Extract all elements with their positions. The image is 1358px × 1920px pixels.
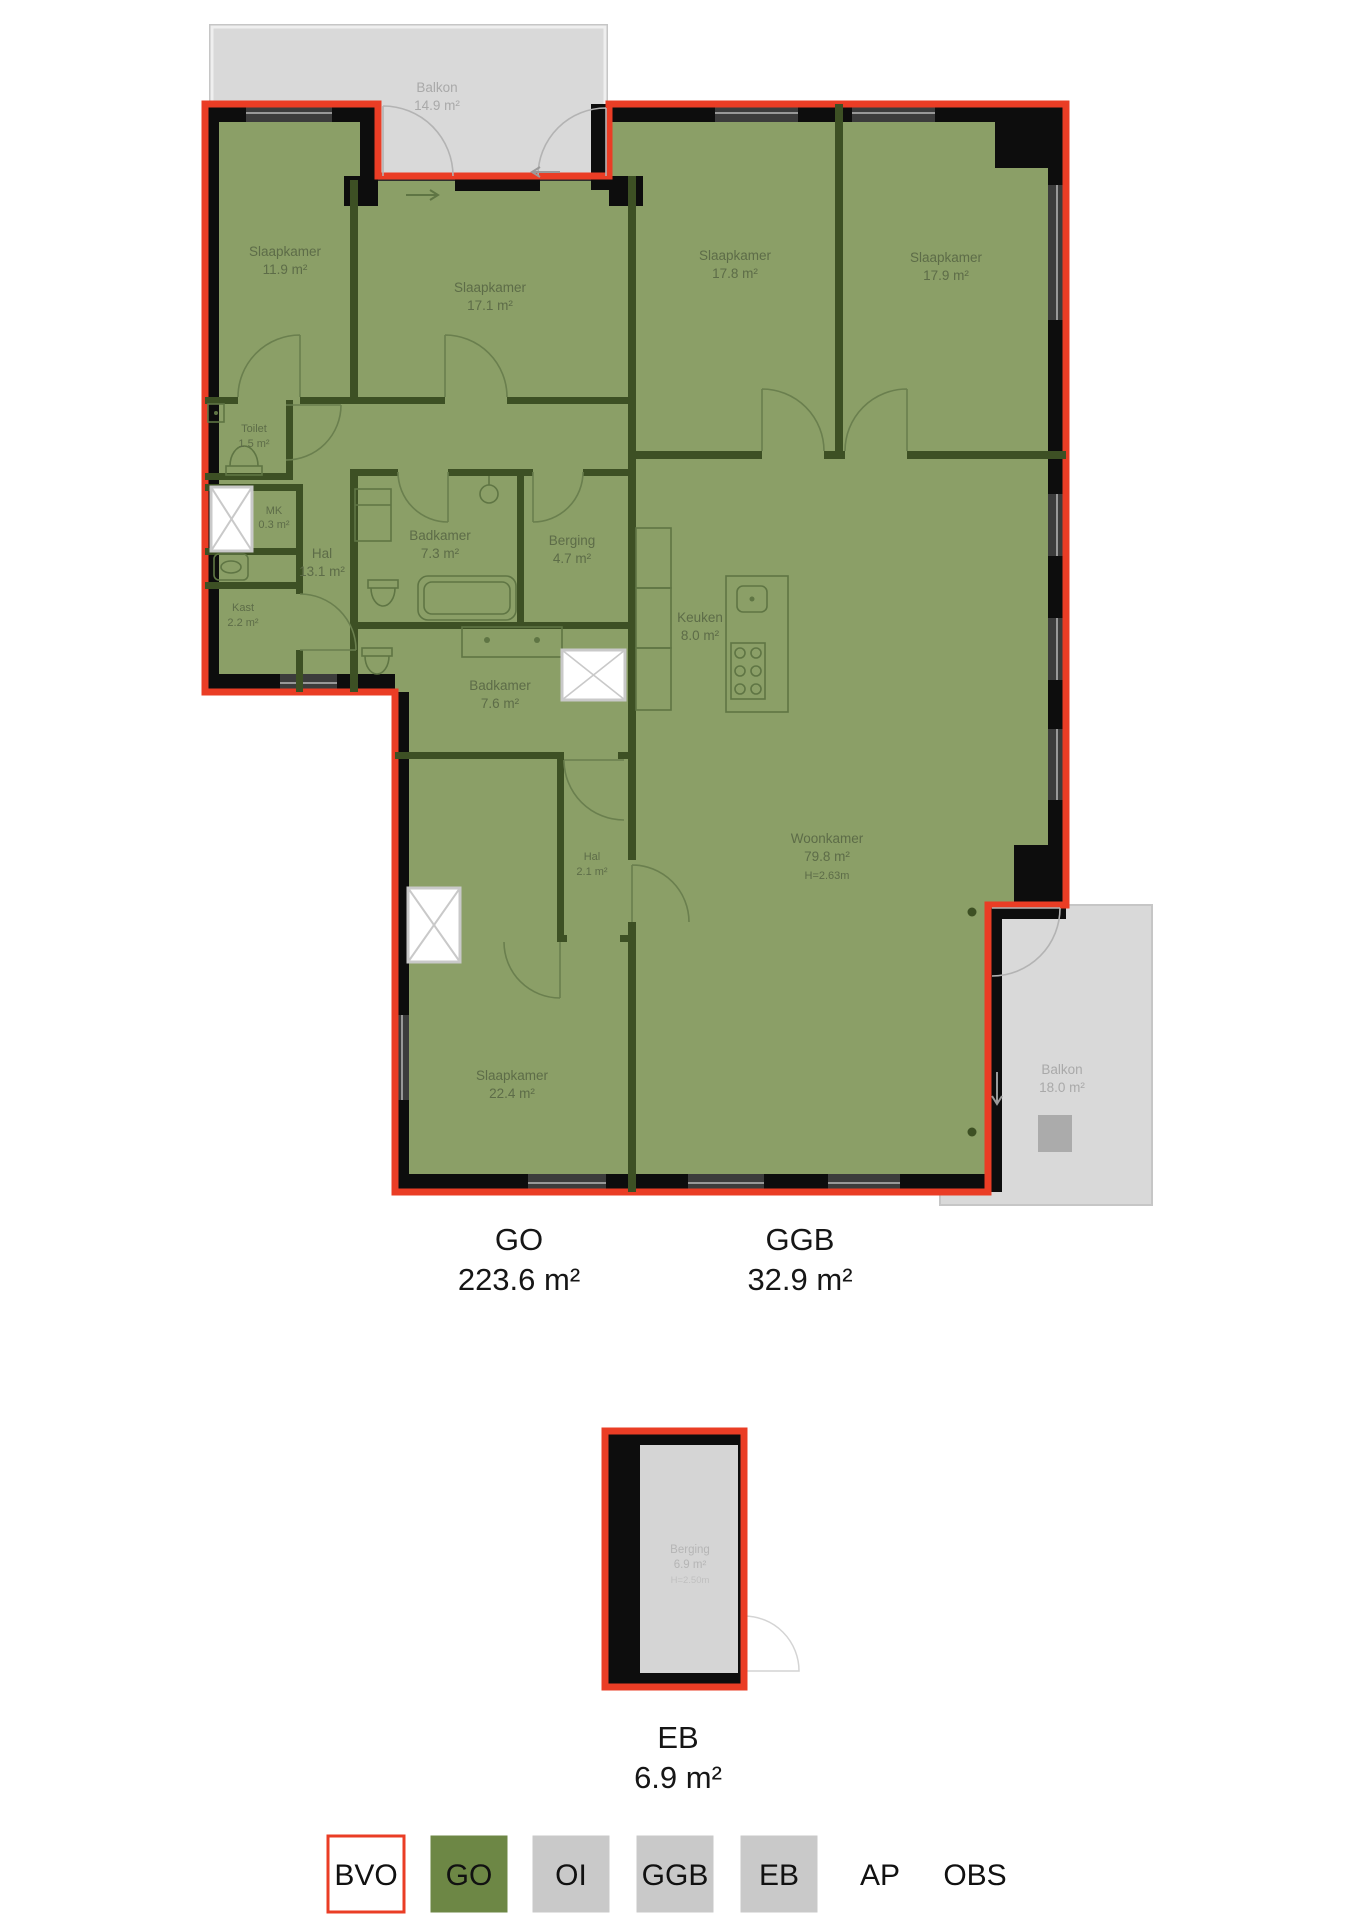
svg-text:EB: EB xyxy=(759,1859,799,1892)
svg-text:79.8 m²: 79.8 m² xyxy=(804,849,850,864)
legend: BVO GO OI GGB EB AP OBS xyxy=(328,1836,1007,1912)
door-arc xyxy=(744,1616,799,1671)
dot-marker xyxy=(968,1128,977,1137)
svg-text:18.0 m²: 18.0 m² xyxy=(1039,1080,1085,1095)
floorplan-svg: Slaapkamer11.9 m² Slaapkamer17.1 m² Slaa… xyxy=(0,0,1358,1920)
svg-text:1.5 m²: 1.5 m² xyxy=(238,438,270,450)
svg-text:H=2.63m: H=2.63m xyxy=(805,870,850,882)
svg-text:Slaapkamer: Slaapkamer xyxy=(454,280,527,295)
svg-text:Keuken: Keuken xyxy=(677,610,723,625)
svg-text:223.6 m²: 223.6 m² xyxy=(458,1262,580,1297)
svg-text:32.9 m²: 32.9 m² xyxy=(747,1262,852,1297)
svg-text:GGB: GGB xyxy=(642,1859,709,1892)
svg-text:GGB: GGB xyxy=(766,1222,835,1257)
summary-go: GO 223.6 m² xyxy=(458,1222,580,1297)
svg-text:22.4 m²: 22.4 m² xyxy=(489,1086,535,1101)
eb-unit: Berging 6.9 m² H=2.50m xyxy=(605,1431,799,1687)
svg-text:Berging: Berging xyxy=(670,1544,710,1556)
legend-item-ggb: GGB xyxy=(637,1836,713,1912)
legend-item-ap: AP xyxy=(860,1859,900,1892)
svg-text:Berging: Berging xyxy=(549,533,596,548)
svg-text:Kast: Kast xyxy=(232,602,254,614)
svg-text:H=2.50m: H=2.50m xyxy=(671,1575,710,1586)
svg-text:Badkamer: Badkamer xyxy=(469,678,531,693)
svg-text:Hal: Hal xyxy=(312,546,332,561)
svg-text:Hal: Hal xyxy=(584,851,601,863)
svg-text:Slaapkamer: Slaapkamer xyxy=(910,250,983,265)
svg-text:14.9 m²: 14.9 m² xyxy=(414,98,460,113)
svg-text:7.3 m²: 7.3 m² xyxy=(421,546,460,561)
svg-text:Toilet: Toilet xyxy=(241,423,267,435)
svg-text:7.6 m²: 7.6 m² xyxy=(481,696,520,711)
svg-text:GO: GO xyxy=(446,1859,493,1892)
svg-text:OI: OI xyxy=(555,1859,587,1892)
svg-text:6.9 m²: 6.9 m² xyxy=(674,1559,707,1571)
svg-text:Woonkamer: Woonkamer xyxy=(791,831,864,846)
svg-text:Slaapkamer: Slaapkamer xyxy=(476,1068,549,1083)
svg-text:GO: GO xyxy=(495,1222,543,1257)
shaft-icon xyxy=(211,487,252,551)
summary-eb: EB 6.9 m² xyxy=(634,1720,722,1795)
balcony-block-icon xyxy=(1038,1115,1072,1152)
svg-text:BVO: BVO xyxy=(334,1859,397,1892)
svg-text:Badkamer: Badkamer xyxy=(409,528,471,543)
svg-text:Balkon: Balkon xyxy=(416,80,457,95)
legend-item-oi: OI xyxy=(533,1836,609,1912)
svg-text:2.1 m²: 2.1 m² xyxy=(576,866,608,878)
svg-text:17.8 m²: 17.8 m² xyxy=(712,266,758,281)
svg-text:17.1 m²: 17.1 m² xyxy=(467,298,513,313)
legend-item-eb: EB xyxy=(741,1836,817,1912)
svg-text:4.7 m²: 4.7 m² xyxy=(553,551,592,566)
svg-text:2.2 m²: 2.2 m² xyxy=(227,617,259,629)
eb-unit-label: Berging 6.9 m² H=2.50m xyxy=(670,1544,710,1586)
svg-text:OBS: OBS xyxy=(943,1859,1006,1892)
floorplan-page: Slaapkamer11.9 m² Slaapkamer17.1 m² Slaa… xyxy=(0,0,1358,1920)
svg-text:Balkon: Balkon xyxy=(1041,1062,1082,1077)
svg-text:Slaapkamer: Slaapkamer xyxy=(699,248,772,263)
legend-item-go: GO xyxy=(431,1836,507,1912)
svg-text:AP: AP xyxy=(860,1859,900,1892)
svg-text:Slaapkamer: Slaapkamer xyxy=(249,244,322,259)
shower-icon xyxy=(562,650,625,700)
dot-marker xyxy=(968,908,977,917)
svg-text:8.0 m²: 8.0 m² xyxy=(681,628,720,643)
legend-item-obs: OBS xyxy=(943,1859,1006,1892)
shaft-icon xyxy=(408,888,460,962)
svg-text:13.1 m²: 13.1 m² xyxy=(299,564,345,579)
legend-item-bvo: BVO xyxy=(328,1836,404,1912)
svg-text:17.9 m²: 17.9 m² xyxy=(923,268,969,283)
svg-text:6.9 m²: 6.9 m² xyxy=(634,1760,722,1795)
summary-ggb: GGB 32.9 m² xyxy=(747,1222,852,1297)
svg-text:0.3 m²: 0.3 m² xyxy=(258,519,290,531)
svg-text:11.9 m²: 11.9 m² xyxy=(263,262,308,277)
svg-text:EB: EB xyxy=(657,1720,698,1755)
svg-text:MK: MK xyxy=(266,505,283,517)
